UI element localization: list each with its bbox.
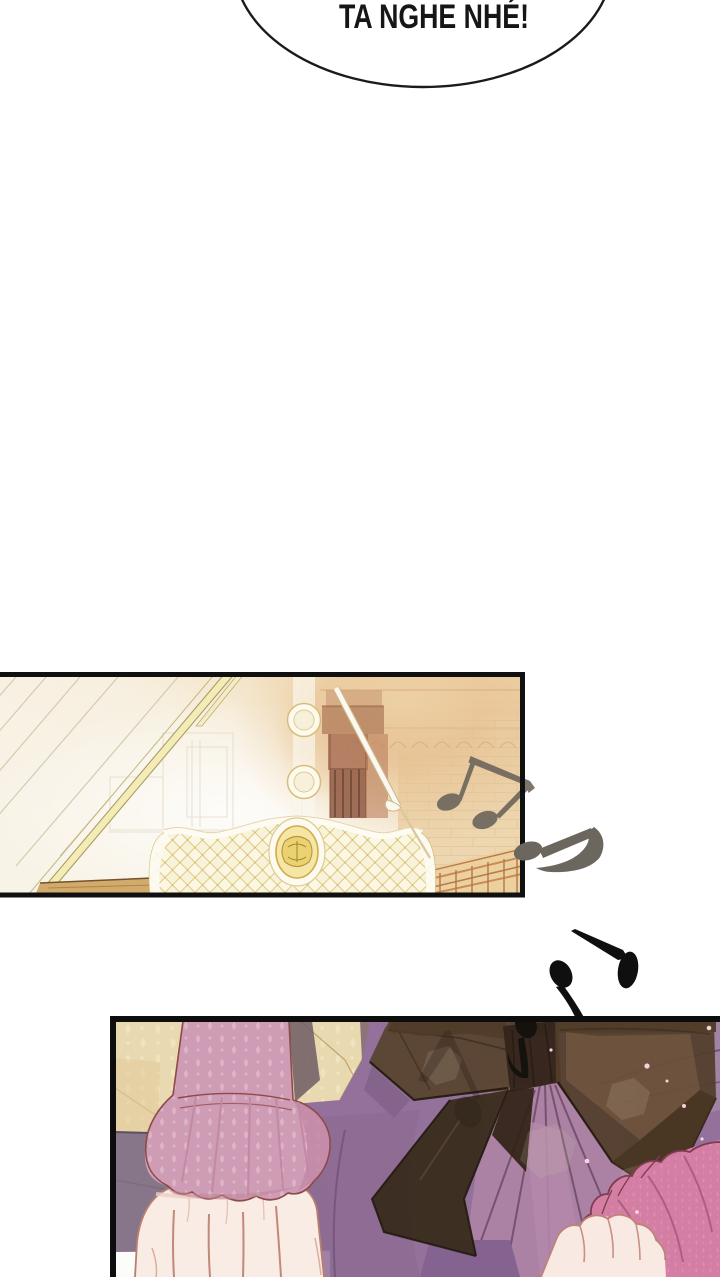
svg-text:TA NGHE NHÉ!: TA NGHE NHÉ! — [339, 0, 529, 36]
